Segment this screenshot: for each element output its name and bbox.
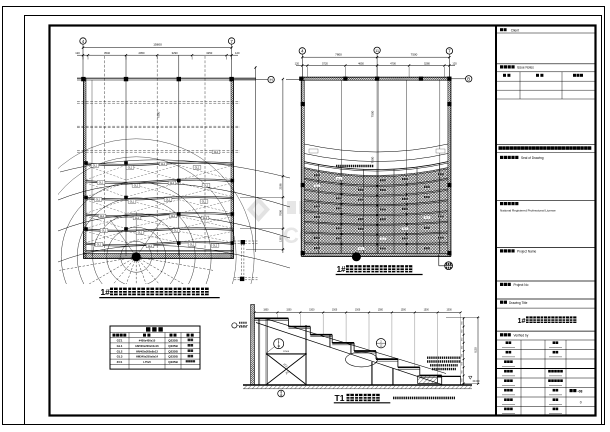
svg-text:7500: 7500	[371, 110, 375, 117]
svg-text:Drawing Title: Drawing Title	[509, 301, 528, 305]
svg-text:Q235B: Q235B	[168, 360, 178, 364]
svg-text:GL1: GL1	[202, 201, 207, 204]
svg-text:HN500x200x10x16: HN500x200x10x16	[135, 344, 159, 348]
svg-text:±0.000: ±0.000	[473, 381, 481, 383]
svg-text:1500: 1500	[309, 310, 315, 312]
svg-text:HN400x200x8x13: HN400x200x8x13	[136, 349, 158, 353]
svg-text:GL1: GL1	[100, 215, 105, 218]
svg-text:0: 0	[580, 400, 582, 404]
svg-text:120: 120	[452, 61, 457, 65]
svg-text:1500: 1500	[378, 310, 384, 312]
svg-text:1500: 1500	[447, 310, 453, 312]
svg-text:7500: 7500	[411, 52, 418, 56]
svg-text:5280: 5280	[424, 61, 430, 65]
svg-text:GL1: GL1	[161, 163, 166, 166]
svg-text:L75x5: L75x5	[143, 360, 151, 364]
svg-text:12500: 12500	[283, 351, 290, 353]
svg-text:Verified by: Verified by	[514, 334, 529, 338]
svg-text:11: 11	[375, 49, 379, 53]
svg-text:1381: 1381	[278, 236, 282, 242]
svg-text:2196: 2196	[278, 183, 282, 189]
svg-text:120: 120	[75, 51, 80, 55]
svg-text:GL1: GL1	[99, 182, 104, 185]
svg-text:1500: 1500	[355, 310, 361, 312]
svg-text:GL1: GL1	[128, 167, 133, 170]
svg-text:GL2: GL2	[117, 349, 123, 353]
svg-text:120: 120	[295, 61, 300, 65]
svg-text:1#: 1#	[518, 316, 526, 325]
svg-text:GZ1: GZ1	[117, 339, 123, 343]
svg-text:H: H	[270, 77, 273, 82]
svg-text:1500: 1500	[286, 310, 292, 312]
svg-text:Project No: Project No	[514, 283, 529, 287]
svg-text:Client: Client	[511, 28, 520, 32]
svg-text:1#: 1#	[337, 265, 346, 274]
svg-text:B: B	[467, 77, 470, 82]
svg-text:GL1: GL1	[203, 217, 208, 220]
svg-text:4650: 4650	[358, 61, 364, 65]
svg-text:1500: 1500	[332, 310, 338, 312]
svg-text:1500: 1500	[424, 310, 430, 312]
svg-text:HM340x250x9x14: HM340x250x9x14	[136, 355, 159, 359]
svg-text:2950: 2950	[139, 51, 145, 55]
svg-text:GL1: GL1	[148, 245, 153, 248]
svg-text:120: 120	[235, 51, 240, 55]
svg-text:1800: 1800	[263, 310, 269, 312]
svg-text:GL1: GL1	[93, 165, 98, 168]
svg-text:GL1: GL1	[171, 215, 176, 218]
svg-text:3540: 3540	[104, 51, 110, 55]
svg-text:-08: -08	[578, 389, 583, 393]
svg-text:GL1: GL1	[130, 201, 135, 204]
svg-text:3250: 3250	[206, 51, 212, 55]
svg-text:GL1: GL1	[190, 244, 195, 247]
svg-text:GL1: GL1	[195, 167, 200, 170]
svg-text:3290: 3290	[172, 51, 178, 55]
svg-text:ZC1: ZC1	[117, 360, 123, 364]
svg-text:7800: 7800	[335, 52, 342, 56]
svg-text:GL1: GL1	[213, 245, 218, 248]
svg-text:1500: 1500	[401, 310, 407, 312]
svg-text:GL1: GL1	[134, 185, 139, 188]
svg-text:Seal of Drawing: Seal of Drawing	[521, 156, 544, 160]
svg-text:Q235B: Q235B	[168, 355, 178, 359]
svg-text:GL1: GL1	[117, 344, 123, 348]
svg-text:GL1: GL1	[102, 230, 107, 233]
svg-text:GL1: GL1	[204, 185, 209, 188]
svg-text:7000: 7000	[278, 210, 282, 216]
svg-text:8150: 8150	[475, 347, 478, 353]
svg-text:GL1: GL1	[96, 199, 101, 202]
svg-text:7500: 7500	[371, 156, 375, 163]
svg-text:GL1: GL1	[135, 217, 140, 220]
svg-text:T1: T1	[335, 393, 345, 403]
svg-text:Issue Notes: Issue Notes	[517, 66, 534, 70]
svg-text:Q235B: Q235B	[168, 349, 178, 353]
svg-text:GL1: GL1	[166, 199, 171, 202]
svg-text:GL1: GL1	[170, 182, 175, 185]
svg-text:5720: 5720	[322, 61, 328, 65]
svg-text:7500: 7500	[157, 111, 161, 118]
svg-text:GL1: GL1	[214, 151, 219, 154]
svg-text:Project Name: Project Name	[517, 250, 537, 254]
svg-text:National Registered Profession: National Registered Professional License	[500, 209, 556, 213]
svg-text:GL1: GL1	[97, 244, 102, 247]
svg-text:#400x400x10: #400x400x10	[139, 339, 156, 343]
svg-text:GL3: GL3	[117, 355, 123, 359]
svg-text:1#: 1#	[101, 287, 111, 297]
svg-text:Q235B: Q235B	[168, 339, 178, 343]
svg-text:15800: 15800	[153, 43, 162, 47]
svg-text:GL1: GL1	[138, 232, 143, 235]
svg-text:Q235B: Q235B	[168, 344, 178, 348]
svg-text:4700: 4700	[390, 61, 396, 65]
svg-text:GL1: GL1	[174, 230, 179, 233]
